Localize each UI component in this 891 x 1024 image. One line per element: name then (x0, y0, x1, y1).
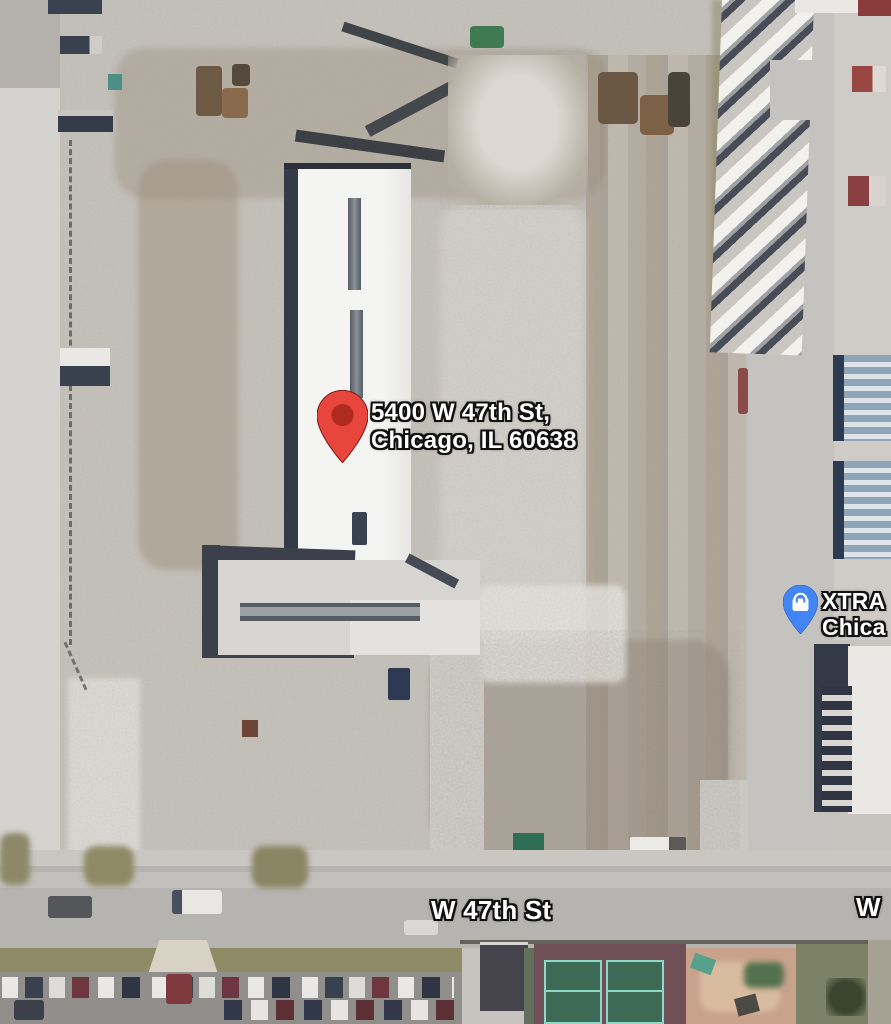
fence-dashed-west (69, 140, 72, 645)
excavator-green (470, 26, 504, 48)
warehouse-roof-xtra (848, 646, 891, 814)
tennis-court (544, 960, 602, 1024)
blue-roof-building-1 (833, 355, 891, 441)
warehouse-roof-edge-top (284, 163, 411, 169)
destination-pin-icon[interactable] (317, 390, 368, 463)
vehicle (848, 176, 886, 206)
construction-equipment (232, 64, 250, 86)
vehicle (14, 1000, 44, 1020)
rooftop-unit (352, 512, 367, 545)
vehicle-van-white (172, 890, 222, 914)
vehicle (852, 66, 886, 92)
address-line-2: Chicago, IL 60638 (371, 427, 577, 455)
warehouse-roof-edge-left (284, 169, 298, 575)
grass-patch (252, 846, 308, 888)
tennis-court (606, 960, 664, 1024)
box-truck-blue (388, 668, 410, 700)
construction-equipment (196, 66, 222, 116)
business-name-line-1: XTRA (822, 588, 886, 614)
construction-equipment (222, 88, 248, 118)
business-pin-icon[interactable] (783, 585, 818, 634)
vehicle-car-red (166, 974, 192, 1004)
pin-dot (331, 404, 353, 426)
trailer-row-gap (770, 60, 820, 120)
building-roof-dark (480, 942, 528, 1011)
construction-equipment (668, 72, 690, 127)
trailer-parked (48, 0, 102, 14)
vehicle (858, 0, 891, 16)
business-name-line-2: Chica (822, 614, 886, 640)
address-line-1: 5400 W 47th St, (371, 399, 577, 427)
trailer-parked (60, 366, 110, 386)
tennis-net-line (546, 990, 600, 992)
shopping-bag-icon (793, 599, 809, 612)
trailer-row-diagonal (710, 0, 815, 355)
tennis-net-line (608, 990, 662, 992)
skylight-strip (348, 198, 361, 290)
business-name-label[interactable]: XTRA Chica (822, 588, 886, 640)
hedge-row (524, 948, 534, 1024)
loading-dock-trailers (822, 686, 852, 812)
blue-roof-building-2 (833, 461, 891, 559)
playground-green-patch (744, 962, 784, 988)
satellite-map[interactable]: W 47th St W 5400 W 47th St, Chicago, IL … (0, 0, 891, 1024)
parkway-grass-strip (0, 948, 462, 974)
parked-car-row (224, 1000, 454, 1020)
construction-equipment (598, 72, 638, 124)
path-corner (868, 940, 891, 1024)
street-name-label: W 47th St (431, 895, 551, 926)
trailer-parked (58, 110, 113, 132)
skylight-bar (240, 603, 420, 621)
utility-box (108, 74, 122, 90)
container-red (242, 720, 258, 737)
parked-car-row (2, 977, 454, 998)
vehicle (738, 368, 748, 414)
rubble-pile (448, 55, 588, 205)
destination-address-label: 5400 W 47th St, Chicago, IL 60638 (371, 399, 577, 455)
vehicle-van-dark (48, 896, 92, 918)
skylight-strip (350, 310, 363, 398)
grass-patch (0, 833, 30, 885)
grass-patch (84, 846, 134, 886)
pin-body (317, 390, 368, 462)
trailer-parked (60, 348, 110, 366)
trailer-parked (60, 36, 102, 54)
bush (826, 978, 866, 1016)
street-name-label-clipped: W (856, 892, 881, 923)
